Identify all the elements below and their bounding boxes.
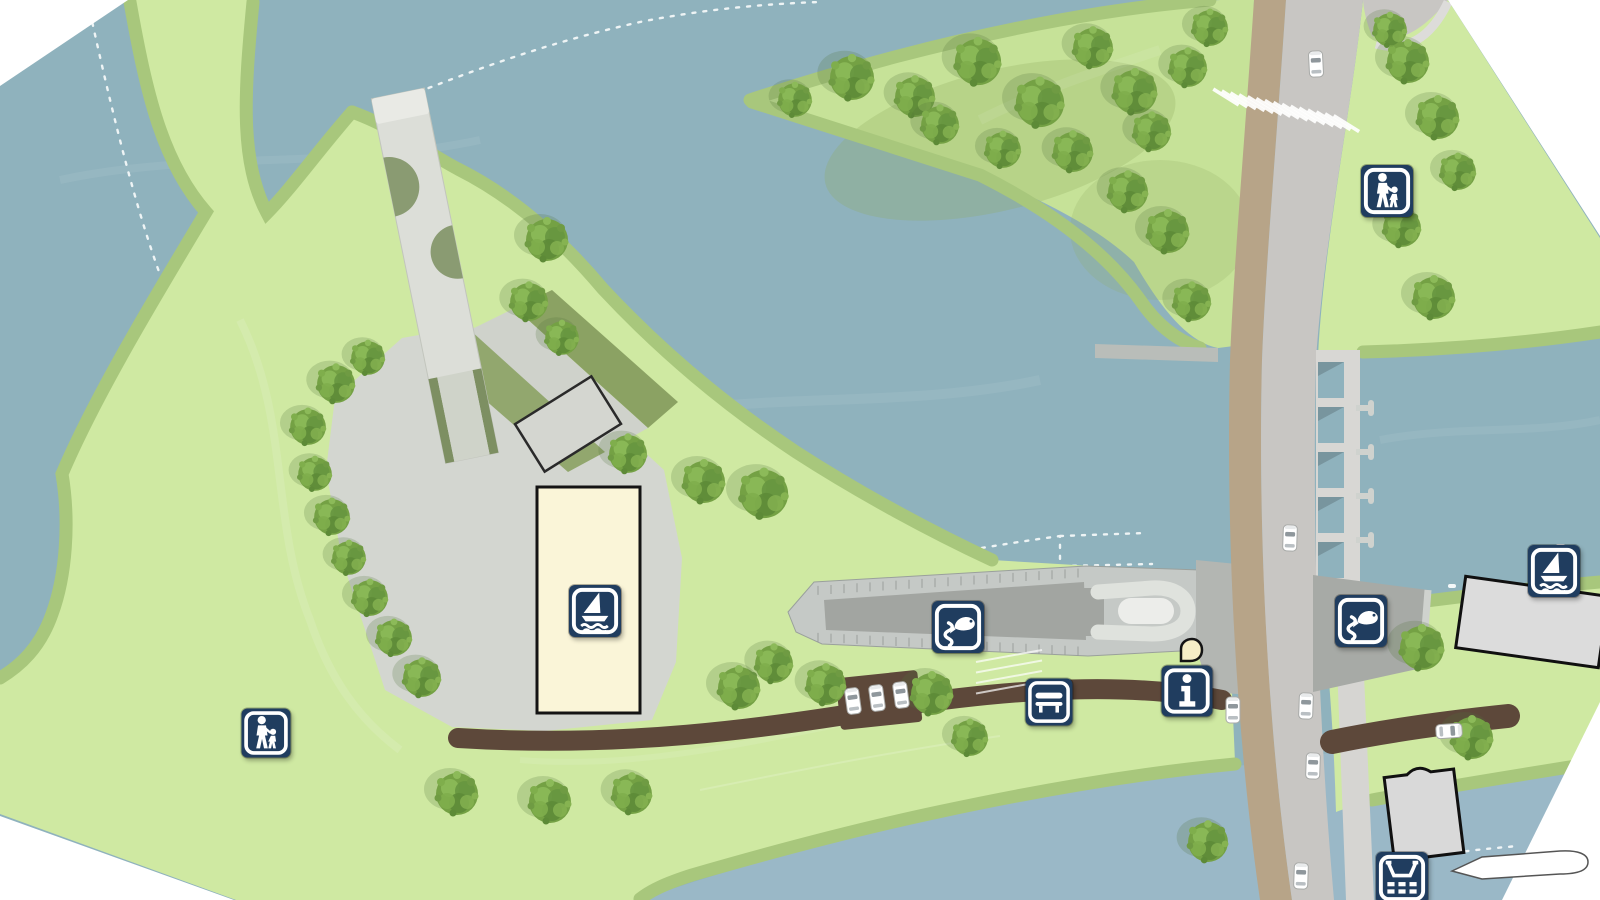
fish-ladder-icon — [945, 617, 975, 645]
pedestrian-icon — [1377, 173, 1398, 207]
pedestrian-icon — [256, 716, 276, 748]
car — [892, 681, 909, 709]
fish-ladder-icon — [1348, 611, 1378, 639]
slipway-icon — [1386, 863, 1419, 894]
car — [1226, 697, 1240, 723]
sailboat-icon — [581, 592, 608, 632]
car — [1294, 863, 1309, 889]
site-plan-map — [0, 0, 1600, 900]
information-point-badge[interactable] — [1162, 666, 1213, 717]
bench-icon — [1035, 693, 1062, 713]
car — [868, 684, 885, 712]
south-building — [1384, 764, 1464, 861]
fish-ladder-west-badge[interactable] — [932, 601, 984, 653]
car — [844, 687, 861, 715]
slipway-south-badge[interactable] — [1376, 852, 1428, 900]
car — [1306, 753, 1321, 779]
bench-rest-area-badge[interactable] — [1026, 679, 1073, 726]
pedestrian-zone-west-badge[interactable] — [242, 709, 291, 758]
location-marker — [1181, 639, 1202, 661]
car — [1308, 51, 1323, 78]
car — [1436, 723, 1463, 739]
pedestrian-zone-north-badge[interactable] — [1361, 165, 1413, 217]
terrain-canvas — [0, 0, 1600, 900]
boat-hall-badge[interactable] — [569, 585, 621, 637]
sailboat-icon — [1540, 552, 1567, 592]
car — [1283, 525, 1298, 551]
car — [1299, 693, 1314, 719]
marina-east-badge[interactable] — [1528, 545, 1580, 597]
fish-ladder-east-badge[interactable] — [1335, 595, 1387, 647]
info-icon — [1179, 674, 1195, 707]
fish-ladder-structure — [788, 566, 1210, 656]
